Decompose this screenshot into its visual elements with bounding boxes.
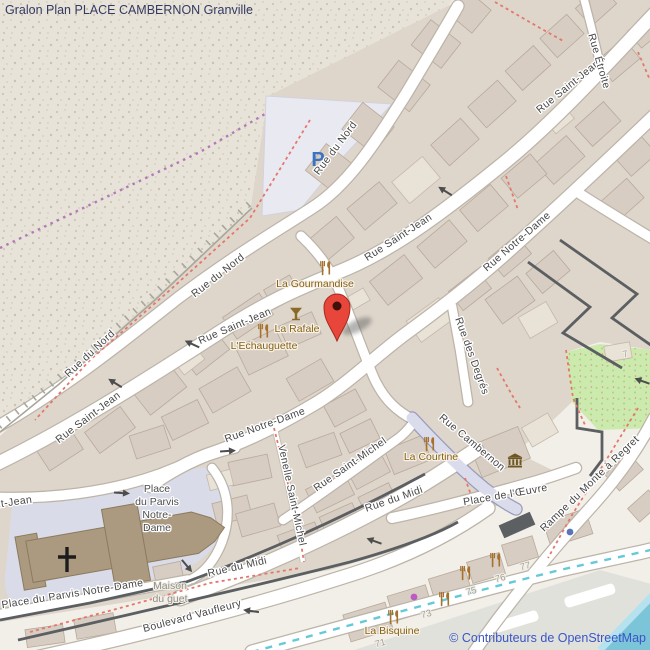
poi-label: La Rafale: [275, 323, 320, 335]
place-label: du Parvis: [135, 496, 179, 508]
poi-label: La Gourmandise: [276, 278, 354, 290]
map-canvas[interactable]: P Rue du NordRue du NordRue du NordRue S…: [0, 0, 650, 650]
place-label: Place: [144, 483, 170, 495]
poi-label: L'Echauguette: [231, 340, 298, 352]
place-label: Dame: [143, 522, 171, 534]
poi-label: La Bisquine: [365, 625, 420, 637]
poi-label: La Courtine: [404, 451, 458, 463]
dot-magenta-icon: [411, 594, 418, 601]
place-label: Maison: [153, 580, 187, 592]
marker-pin-dot: [333, 302, 342, 311]
page-title: Gralon Plan PLACE CAMBERNON Granville: [5, 3, 253, 17]
attribution-link[interactable]: © Contributeurs de OpenStreetMap: [449, 631, 646, 645]
place-label: Notre-: [142, 509, 172, 521]
place-label: du guet: [152, 593, 187, 605]
dot-blue-icon: [567, 529, 574, 536]
map-viewport[interactable]: P Rue du NordRue du NordRue du NordRue S…: [0, 0, 650, 650]
